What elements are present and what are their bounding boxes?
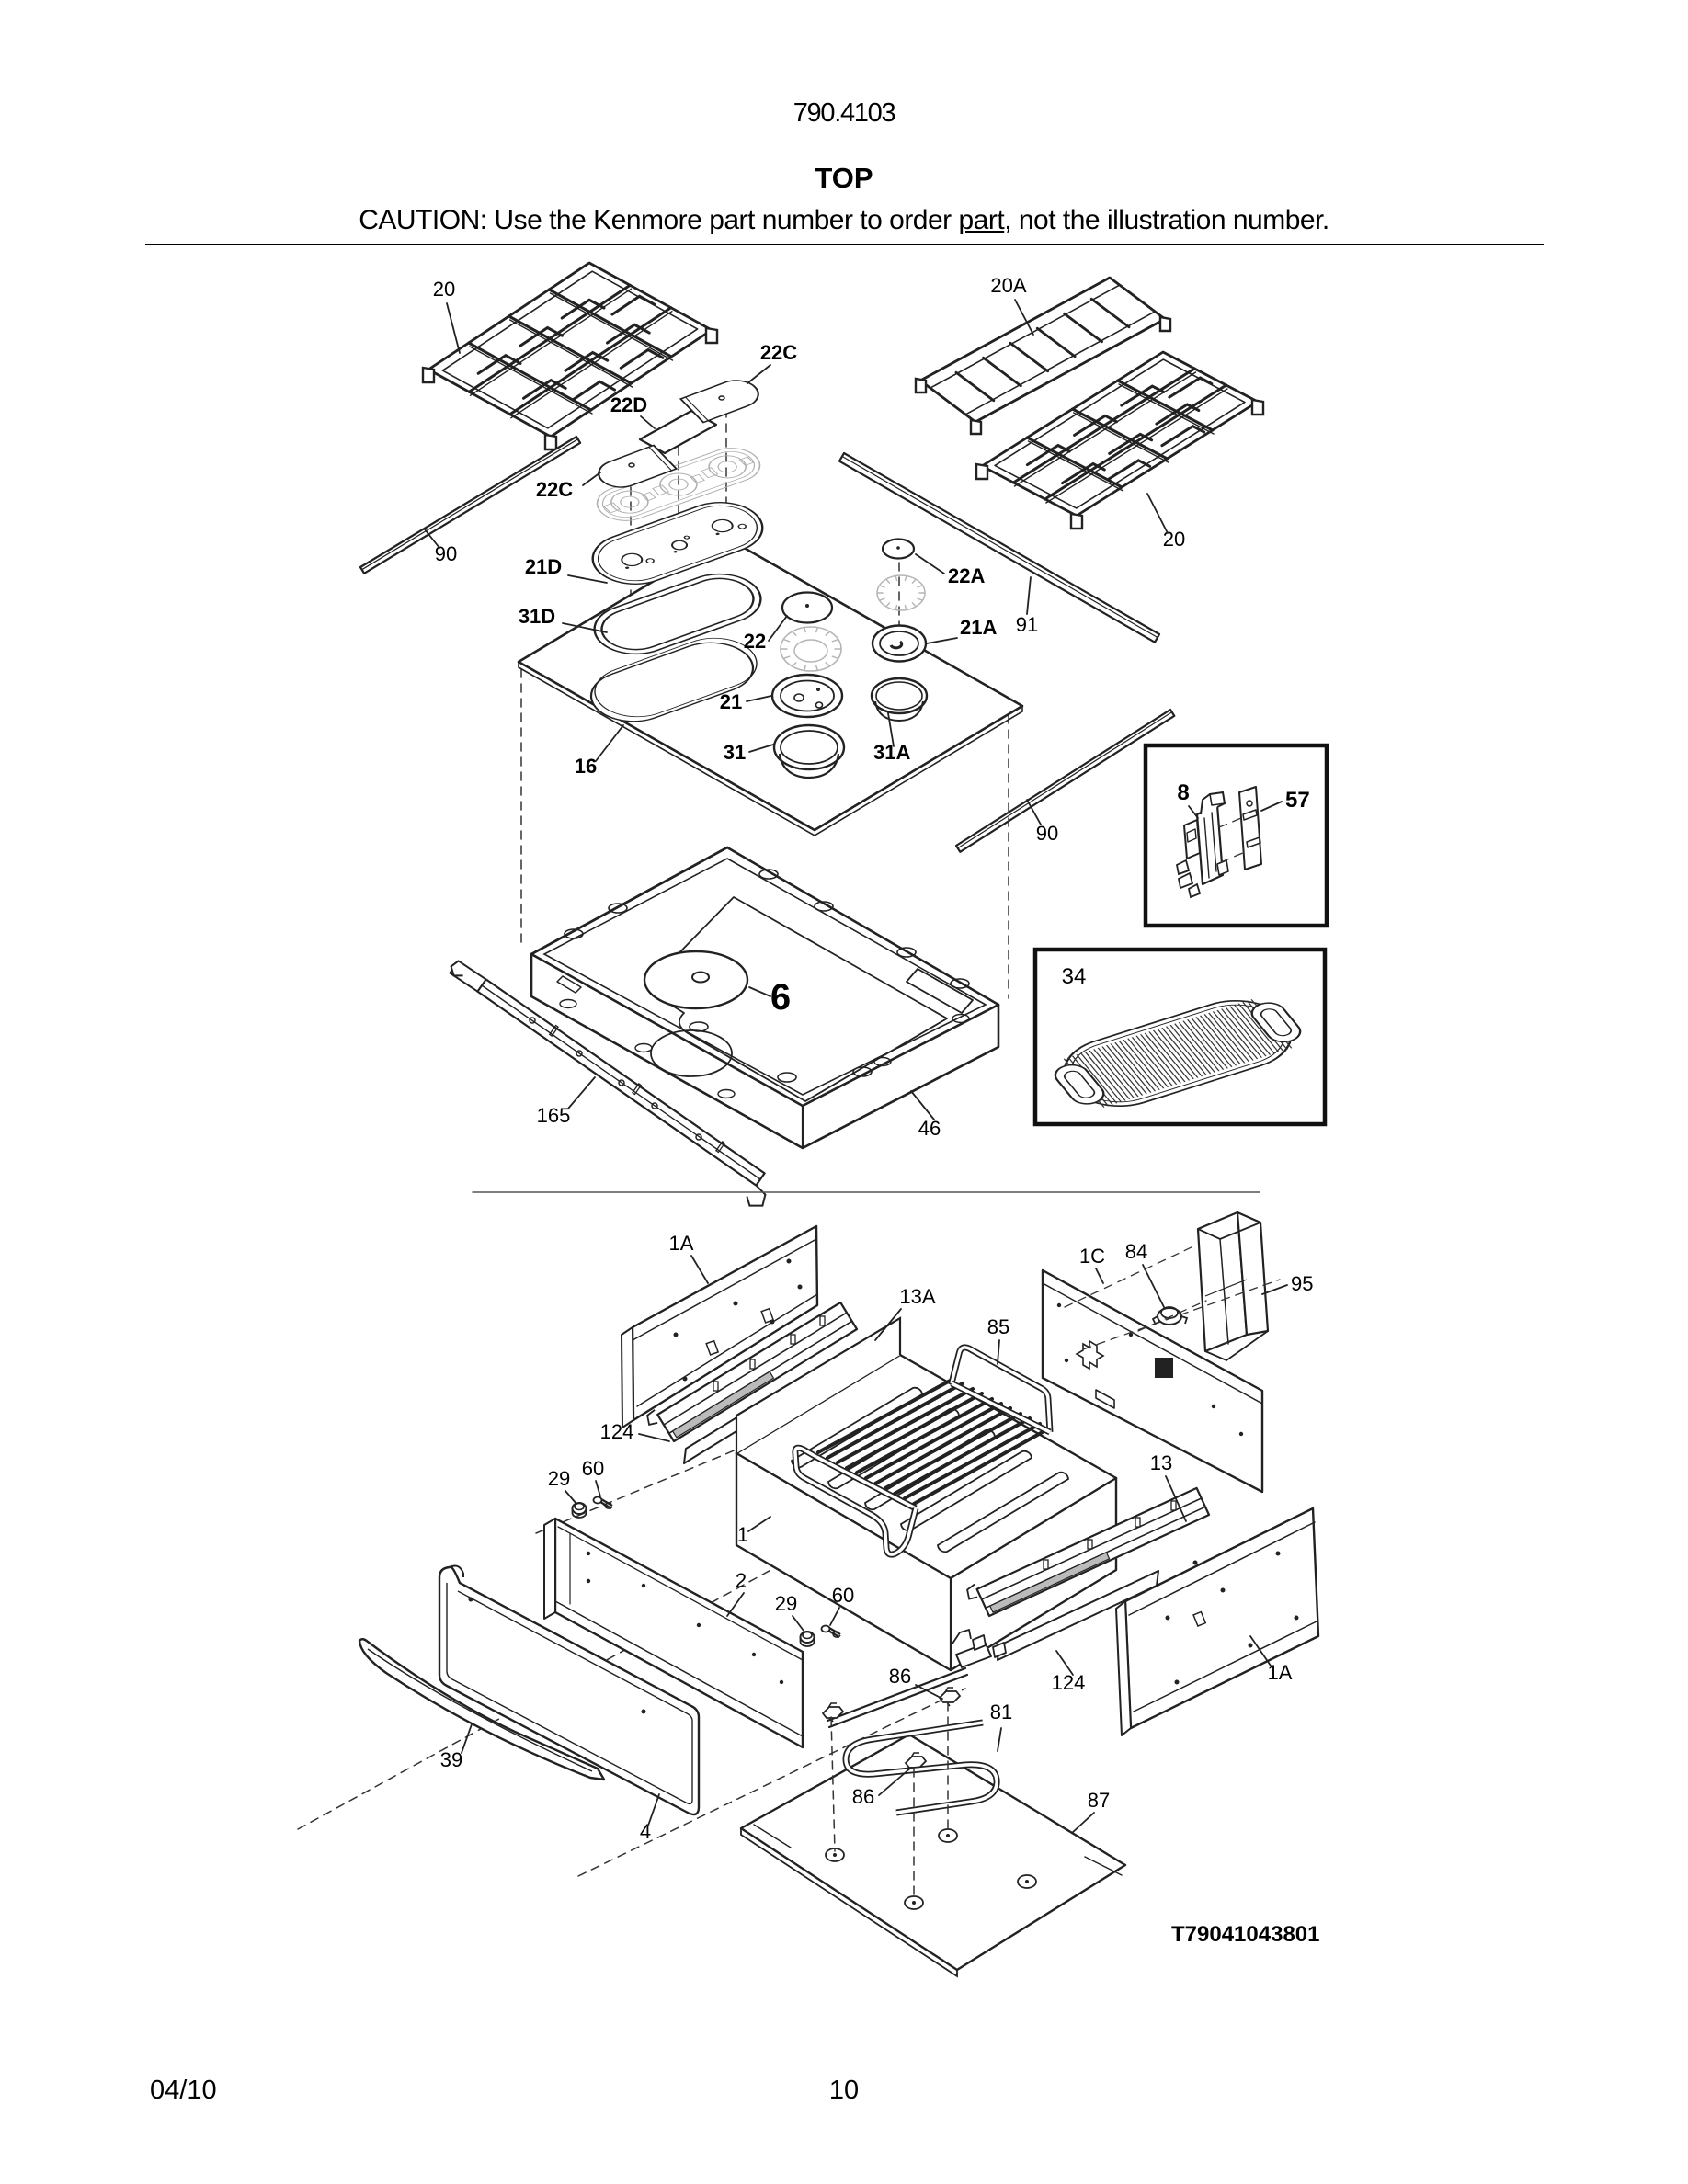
svg-text:46: 46 <box>918 1117 941 1140</box>
svg-text:124: 124 <box>600 1420 634 1443</box>
svg-text:22A: 22A <box>948 564 985 587</box>
svg-text:20A: 20A <box>990 274 1026 297</box>
svg-text:86: 86 <box>889 1665 911 1688</box>
svg-text:81: 81 <box>990 1701 1012 1723</box>
svg-text:22D: 22D <box>610 393 647 416</box>
svg-text:2: 2 <box>736 1569 747 1592</box>
svg-text:22C: 22C <box>536 478 573 501</box>
svg-text:84: 84 <box>1125 1240 1147 1263</box>
svg-text:1A: 1A <box>1268 1661 1293 1684</box>
svg-text:60: 60 <box>582 1457 604 1480</box>
svg-text:13: 13 <box>1150 1451 1172 1474</box>
svg-text:34: 34 <box>1062 964 1087 989</box>
svg-text:29: 29 <box>775 1592 797 1615</box>
svg-text:29: 29 <box>548 1467 570 1490</box>
svg-text:91: 91 <box>1016 613 1038 636</box>
svg-text:87: 87 <box>1088 1789 1110 1812</box>
svg-text:95: 95 <box>1291 1272 1313 1295</box>
svg-text:31A: 31A <box>873 741 910 764</box>
svg-text:1C: 1C <box>1079 1245 1105 1268</box>
svg-text:57: 57 <box>1285 788 1310 813</box>
svg-text:31D: 31D <box>519 605 555 628</box>
svg-text:22C: 22C <box>760 341 797 364</box>
svg-text:85: 85 <box>987 1315 1009 1338</box>
svg-text:13A: 13A <box>899 1285 935 1308</box>
svg-text:31: 31 <box>724 741 746 764</box>
svg-text:16: 16 <box>575 755 597 778</box>
svg-text:90: 90 <box>1036 822 1058 845</box>
svg-text:86: 86 <box>852 1785 874 1808</box>
svg-text:1: 1 <box>737 1523 748 1546</box>
svg-text:21: 21 <box>720 690 742 713</box>
svg-text:39: 39 <box>440 1748 462 1771</box>
svg-text:8: 8 <box>1177 780 1189 805</box>
svg-text:21D: 21D <box>525 555 562 578</box>
svg-text:20: 20 <box>433 278 455 301</box>
svg-text:T79041043801: T79041043801 <box>1171 1922 1319 1947</box>
svg-text:60: 60 <box>832 1584 854 1607</box>
svg-text:21A: 21A <box>960 616 997 639</box>
svg-text:165: 165 <box>537 1104 571 1127</box>
svg-text:1A: 1A <box>669 1232 694 1255</box>
svg-text:6: 6 <box>770 977 791 1018</box>
svg-text:22: 22 <box>744 630 766 653</box>
svg-text:124: 124 <box>1052 1671 1086 1694</box>
